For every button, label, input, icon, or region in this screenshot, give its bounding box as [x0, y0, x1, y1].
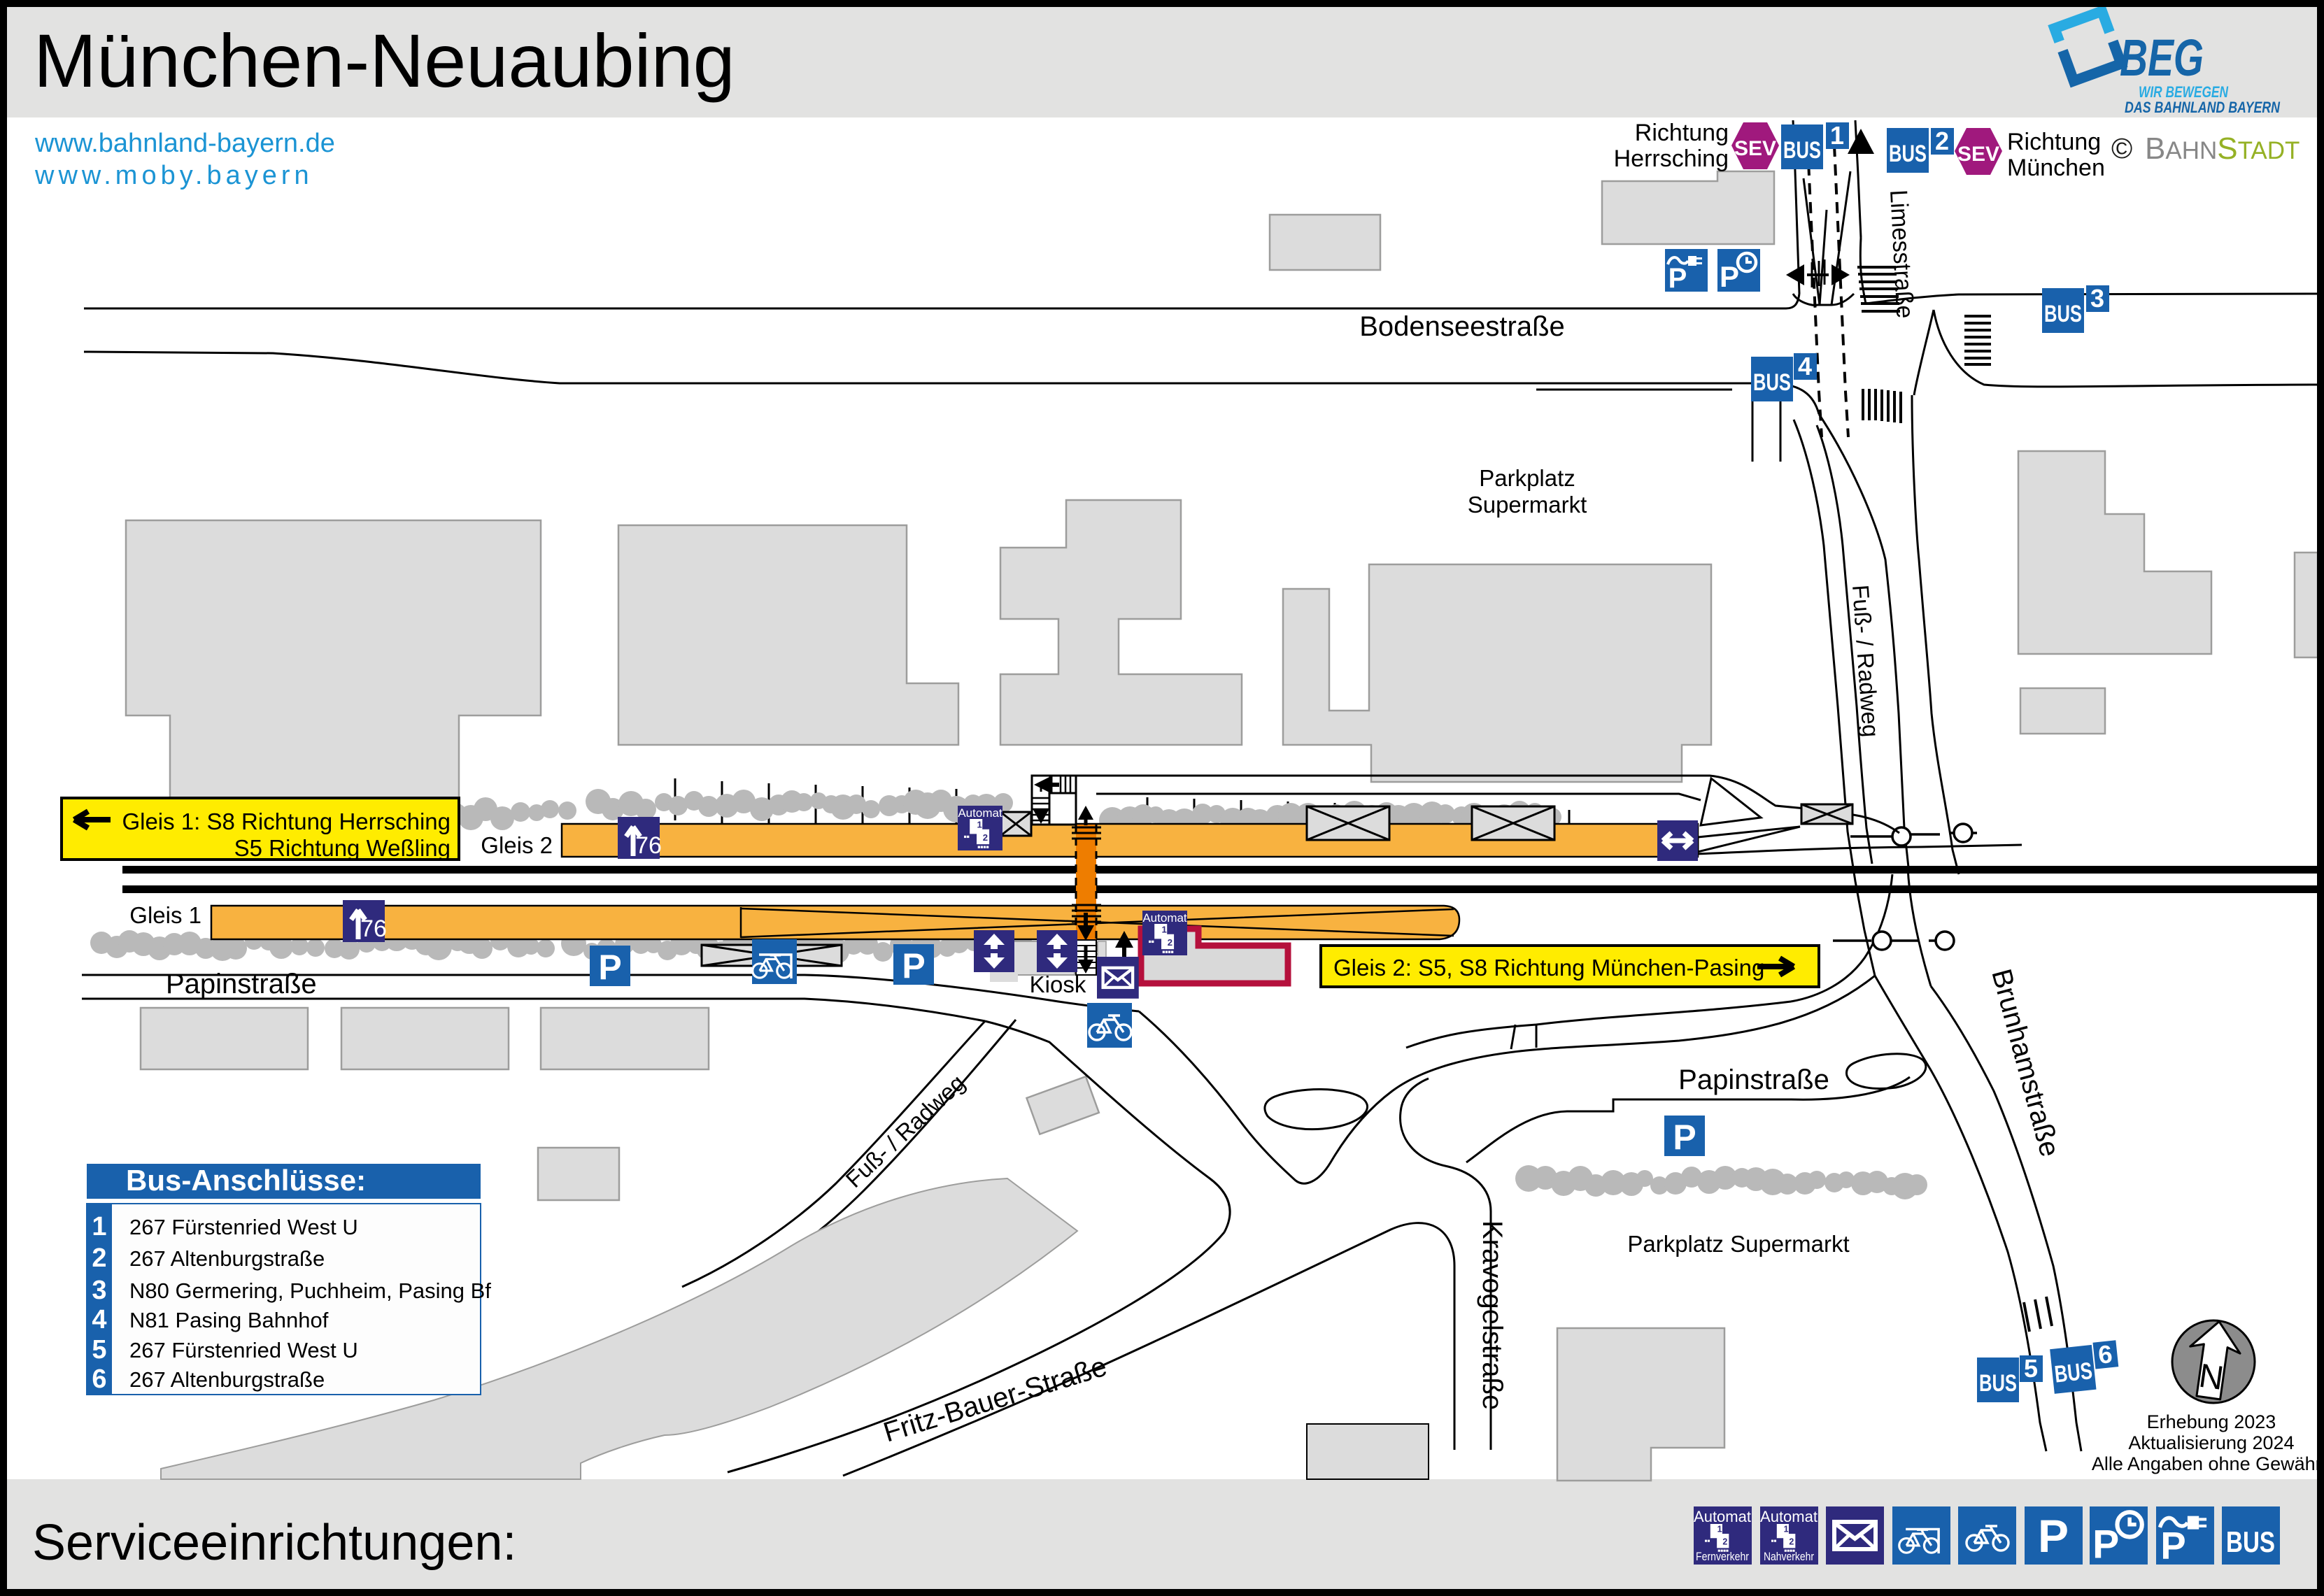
svg-text:1: 1: [92, 1212, 106, 1241]
svg-text:Gleis 2: Gleis 2: [481, 832, 553, 858]
svg-text:Alle Angaben ohne Gewähr!: Alle Angaben ohne Gewähr!: [2092, 1453, 2324, 1474]
svg-text:267 Altenburgstraße: 267 Altenburgstraße: [129, 1367, 325, 1392]
svg-text:6: 6: [92, 1365, 106, 1394]
svg-text:Gleis 1: Gleis 1: [129, 902, 201, 928]
svg-text:N80 Germering, Puchheim, Pasin: N80 Germering, Puchheim, Pasing Bf: [129, 1278, 491, 1303]
svg-text:Parkplatz: Parkplatz: [1479, 465, 1575, 491]
svg-text:Aktualisierung 2024: Aktualisierung 2024: [2128, 1432, 2294, 1453]
svg-text:Supermarkt: Supermarkt: [1468, 492, 1587, 518]
svg-text:Automat: Automat: [1694, 1508, 1751, 1525]
svg-text:2: 2: [1935, 127, 1949, 155]
svg-text:BUS: BUS: [2226, 1525, 2275, 1558]
svg-text:3: 3: [92, 1276, 106, 1305]
svg-text:Kravogelstraße: Kravogelstraße: [1477, 1220, 1508, 1410]
svg-text:Herrsching: Herrsching: [1614, 145, 1729, 172]
svg-text:©: ©: [2111, 132, 2132, 164]
svg-text:267 Fürstenried West U: 267 Fürstenried West U: [129, 1215, 358, 1239]
svg-text:München-Neuaubing: München-Neuaubing: [34, 18, 735, 103]
svg-text:Automat: Automat: [1760, 1508, 1818, 1525]
svg-text:4: 4: [92, 1305, 106, 1334]
svg-text:P: P: [2038, 1510, 2069, 1562]
svg-text:267 Fürstenried West U: 267 Fürstenried West U: [129, 1338, 358, 1362]
svg-text:Serviceeinrichtungen:: Serviceeinrichtungen:: [32, 1515, 516, 1571]
svg-text:N: N: [2197, 1358, 2226, 1397]
svg-text:Papinstraße: Papinstraße: [166, 969, 317, 999]
svg-text:www.bahnland-bayern.de: www.bahnland-bayern.de: [34, 129, 335, 158]
svg-text:Kiosk: Kiosk: [1030, 971, 1086, 997]
svg-text:BAHNSTADT: BAHNSTADT: [2145, 131, 2300, 166]
svg-text:4: 4: [1798, 352, 1812, 380]
svg-text:Richtung: Richtung: [2007, 129, 2101, 155]
svg-text:3: 3: [2090, 284, 2104, 313]
svg-text:Erhebung 2023: Erhebung 2023: [2147, 1411, 2276, 1432]
svg-text:Parkplatz Supermarkt: Parkplatz Supermarkt: [1627, 1231, 1849, 1257]
svg-text:1: 1: [1830, 121, 1844, 150]
svg-text:Bus-Anschlüsse:: Bus-Anschlüsse:: [126, 1164, 366, 1197]
svg-text:www.moby.bayern: www.moby.bayern: [34, 161, 313, 190]
svg-text:Fernverkehr: Fernverkehr: [1696, 1550, 1749, 1563]
svg-text:Papinstraße: Papinstraße: [1678, 1064, 1829, 1095]
svg-text:DAS BAHNLAND BAYERN: DAS BAHNLAND BAYERN: [2125, 99, 2281, 116]
svg-text:Gleis 1: S8 Richtung Herrschin: Gleis 1: S8 Richtung Herrsching: [122, 808, 451, 834]
svg-text:N81 Pasing Bahnhof: N81 Pasing Bahnhof: [129, 1308, 329, 1332]
svg-text:Gleis 2: S5, S8 Richtung Münch: Gleis 2: S5, S8 Richtung München-Pasing: [1333, 955, 1764, 981]
svg-text:Richtung: Richtung: [1635, 120, 1729, 146]
svg-text:S5 Richtung Weßling: S5 Richtung Weßling: [234, 835, 451, 861]
svg-text:BEG: BEG: [2120, 29, 2204, 87]
svg-text:München: München: [2007, 155, 2105, 181]
svg-text:5: 5: [92, 1335, 106, 1365]
svg-text:Bodenseestraße: Bodenseestraße: [1359, 311, 1565, 342]
svg-text:Nahverkehr: Nahverkehr: [1764, 1550, 1814, 1563]
svg-text:5: 5: [2024, 1354, 2038, 1383]
svg-text:6: 6: [2097, 1339, 2113, 1369]
svg-text:267 Altenburgstraße: 267 Altenburgstraße: [129, 1246, 325, 1271]
svg-text:2: 2: [92, 1244, 106, 1273]
